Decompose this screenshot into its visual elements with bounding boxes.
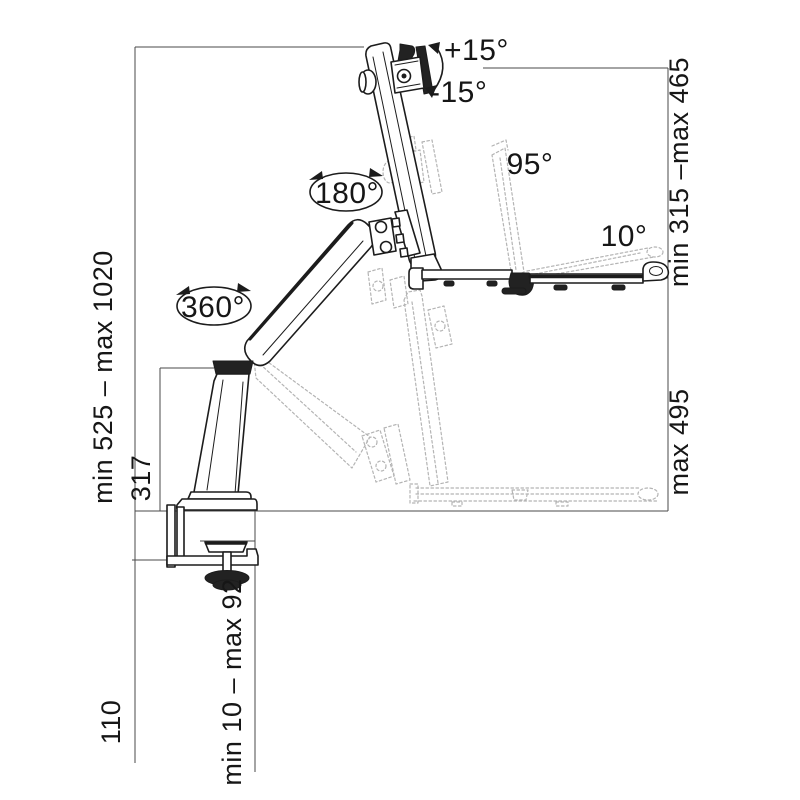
ghost-hinge-cluster (390, 276, 408, 308)
ghost-elbow-bracket (362, 430, 394, 482)
clamp-screw-rod (223, 552, 231, 573)
arm-outline (245, 220, 375, 366)
ghost-vesa-rail (384, 424, 410, 484)
base-foot-plate (177, 499, 257, 510)
tray-foot (487, 281, 497, 286)
ghost-bolt (376, 461, 386, 471)
tray-left-platform (422, 270, 512, 279)
monitor-arm-dimension-diagram: +15° -15° 180° 360° 95° 10° min 525 – ma… (0, 0, 800, 800)
label-desk-clamp-range: min 10 – max 92 (217, 578, 247, 785)
ghost-vesa-mount-lowered (428, 306, 452, 348)
base-rotation-collar (213, 361, 253, 374)
label-below-desk-clearance: 110 (96, 700, 126, 745)
clamp-back-plate-inner (177, 507, 184, 562)
tilt-arrow-up (428, 42, 440, 54)
base-foot-upper (188, 492, 251, 499)
label-tray-to-desk-height: max 495 (664, 388, 694, 495)
ghost-tray-end (638, 488, 658, 500)
vesa-pivot-center (402, 74, 407, 79)
ghost-tray-tilted-end (647, 247, 663, 257)
ghost-tray-foot (556, 502, 568, 506)
tray-foot (554, 285, 567, 290)
tray-hinge-foot (502, 288, 526, 294)
label-overall-height: min 525 – max 1020 (88, 250, 118, 504)
elbow-bolt-bottom (381, 242, 392, 253)
ghost-tray-tilted-line (530, 253, 640, 275)
ghost-monitor-lowered (404, 290, 448, 486)
arm-bottom-seam (263, 241, 363, 355)
label-monitor-tilt-up: +15° (444, 34, 509, 67)
label-tray-to-monitor-height: min 315 –max 465 (664, 57, 694, 287)
tray-left-lip (409, 268, 423, 289)
ghost-vesa-plate-upper (422, 140, 442, 194)
elbow-bolt-top (376, 222, 387, 233)
ghost-bolt (435, 321, 445, 331)
tray-foot (444, 281, 454, 286)
diagram-canvas: +15° -15° 180° 360° 95° 10° min 525 – ma… (0, 0, 800, 800)
label-tray-tilt: 10° (601, 220, 648, 253)
ghost-arm-lowered (253, 351, 370, 468)
label-monitor-tilt-down: -15° (430, 76, 487, 109)
label-arm-swivel: 180° (315, 177, 379, 210)
label-base-rotation: 360° (181, 291, 245, 324)
label-tray-fold: 95° (507, 148, 554, 181)
monitor-knob-cap (359, 72, 366, 92)
tray-foot (612, 285, 625, 290)
ghost-tray-foot (452, 502, 462, 506)
ghost-bolt (373, 281, 383, 291)
ghost-tray-hinge (512, 490, 528, 500)
label-pole-height: 317 (126, 455, 156, 502)
ghost-monitor-seam (412, 302, 438, 483)
ghost-arm-seam (260, 364, 356, 452)
swivel-arrow-right (369, 168, 383, 177)
